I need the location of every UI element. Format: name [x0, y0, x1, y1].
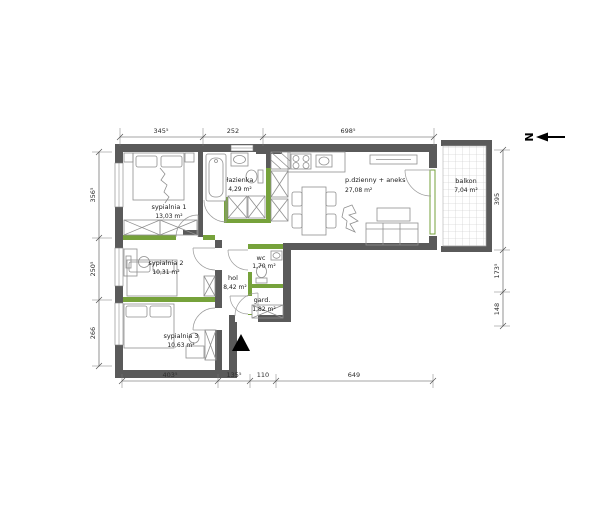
partition-segment: [248, 244, 283, 249]
partition-segment: [266, 168, 271, 223]
nightstand-icon: [124, 153, 133, 162]
room-label-lazienka: łazienka: [227, 176, 254, 184]
dim-top-1: 345⁵: [153, 127, 168, 135]
north-arrow-icon: [536, 133, 548, 142]
dim-top-3: 698⁵: [340, 127, 355, 135]
coffee-table-icon: [377, 208, 410, 221]
floor-plan-drawing: sypialnia 1 13,03 m² sypialnia 2 10,31 m…: [0, 0, 600, 514]
door-sypialnia3: [193, 308, 222, 330]
room-label-sypialnia3: sypialnia 3: [163, 332, 198, 340]
balcony-wall: [441, 140, 492, 146]
wall-segment: [283, 243, 291, 322]
door-balcony: [405, 170, 431, 196]
room-label-hol: hol: [228, 274, 238, 282]
kitchen-cabinet-icon: [271, 171, 288, 221]
shaft-block: [256, 144, 282, 154]
dim-bottom-3: 110: [257, 371, 269, 379]
wall-segment: [229, 315, 235, 322]
partition-segment: [248, 272, 252, 296]
door-sypialnia2: [193, 248, 222, 270]
window-sypialnia1: [115, 163, 123, 207]
room-area-dzienny: 27,08 m²: [345, 187, 373, 194]
bed-double-icon: [133, 153, 184, 203]
dim-bottom: 403⁵ 135⁵ 110 649: [119, 371, 436, 388]
wall-segment: [283, 243, 437, 250]
wardrobe-icon: [205, 330, 216, 360]
room-label-wc: wc: [257, 254, 266, 262]
tv-sideboard-icon: [370, 155, 417, 164]
dim-top: 345⁵ 252 698⁵: [117, 127, 437, 146]
north-indicator: N: [522, 132, 565, 141]
partition-segment: [252, 284, 283, 288]
floor-plan-canvas: sypialnia 1 13,03 m² sypialnia 2 10,31 m…: [0, 0, 600, 514]
balcony-door-window: [429, 168, 437, 236]
room-label-balkon: balkon: [455, 177, 477, 185]
dim-left-1: 356⁵: [89, 187, 97, 202]
room-label-sypialnia1: sypialnia 1: [151, 203, 186, 211]
dim-left: 356⁵ 250⁵ 266: [89, 149, 112, 369]
window-sypialnia2: [115, 248, 123, 286]
door-lazienka: [204, 200, 226, 222]
room-area-wc: 1,70 m²: [252, 263, 276, 270]
door-garderoba: [230, 296, 248, 314]
washbasin-icon: [231, 153, 248, 166]
room-area-hol: 8,42 m²: [223, 284, 247, 291]
room-area-lazienka: 4,29 m²: [228, 186, 252, 193]
dim-right-1: 395: [493, 193, 501, 205]
room-label-sypialnia2: sypialnia 2: [148, 259, 183, 267]
dining-table-icon: [292, 187, 336, 235]
dim-right-2: 173⁵: [493, 263, 501, 278]
door-wc: [228, 250, 248, 270]
window-lazienka: [231, 145, 253, 151]
dim-left-2: 250⁵: [89, 261, 97, 276]
partition-segment: [123, 297, 215, 302]
balcony-floor-hatch: [443, 146, 486, 246]
room-label-garderoba: gard.: [254, 296, 271, 304]
partition-segment: [226, 219, 271, 223]
washer-icon: [228, 196, 265, 218]
dim-right: 395 173⁵ 148: [493, 147, 510, 329]
room-labels: sypialnia 1 13,03 m² sypialnia 2 10,31 m…: [148, 176, 478, 349]
plant-icon: [342, 205, 358, 232]
washbasin-icon: [271, 251, 282, 260]
dim-left-3: 266: [89, 327, 97, 339]
kitchen-counter-icon: [288, 152, 345, 172]
bathtub-icon: [206, 154, 226, 201]
wardrobe-icon: [204, 276, 215, 296]
room-area-balkon: 7,04 m²: [454, 187, 478, 194]
room-area-garderoba: 1,82 m²: [252, 306, 276, 313]
vent-shaft-icon: [271, 152, 290, 169]
dim-top-2: 252: [227, 127, 239, 135]
dim-bottom-4: 649: [348, 371, 360, 379]
dim-bottom-1: 403⁵: [162, 371, 177, 379]
wall-segment: [429, 144, 437, 168]
north-letter: N: [522, 132, 535, 141]
balcony-wall: [441, 246, 492, 252]
wall-segment: [266, 152, 271, 168]
room-area-sypialnia3: 10,63 m²: [167, 342, 195, 349]
dim-right-3: 148: [493, 303, 501, 315]
dim-bottom-2: 135⁵: [226, 371, 241, 379]
room-area-sypialnia2: 10,31 m²: [152, 269, 180, 276]
room-label-dzienny: p.dzienny + aneks: [345, 176, 406, 184]
sofa-icon: [366, 223, 418, 245]
wall-segment: [429, 236, 437, 250]
nightstand-icon: [185, 153, 194, 162]
wall-segment: [198, 152, 203, 237]
partition-segment: [203, 235, 215, 240]
window-sypialnia3: [115, 303, 123, 345]
room-area-sypialnia1: 13,03 m²: [155, 213, 183, 220]
balcony-wall: [486, 140, 492, 252]
partition-segment: [123, 235, 176, 240]
